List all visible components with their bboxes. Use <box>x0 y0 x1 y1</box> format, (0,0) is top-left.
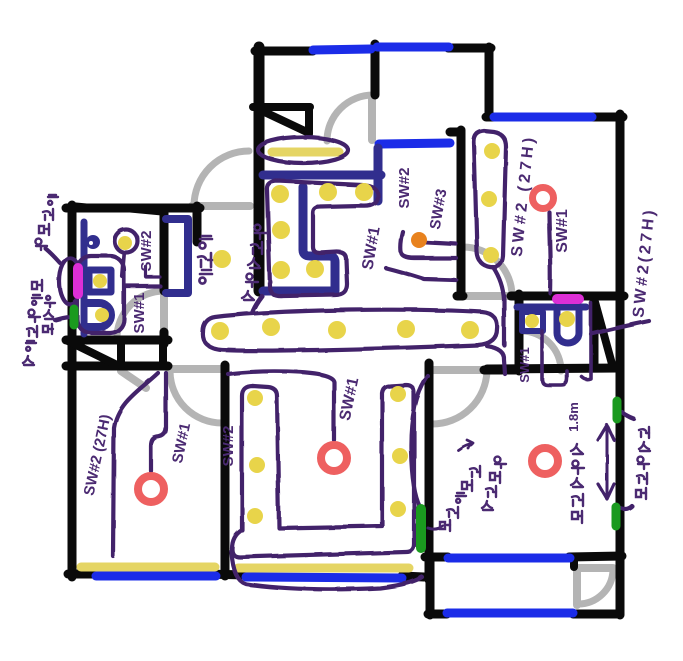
svg-text:SW#2: SW#2 <box>220 426 237 467</box>
svg-text:1.8m: 1.8m <box>566 402 581 432</box>
svg-text:SW#2: SW#2 <box>396 168 413 209</box>
svg-text:SW#2: SW#2 <box>138 231 155 272</box>
svg-text:SW#1: SW#1 <box>554 209 571 253</box>
svg-text:SW#1: SW#1 <box>131 293 148 334</box>
svg-text:SW#1: SW#1 <box>517 347 532 382</box>
